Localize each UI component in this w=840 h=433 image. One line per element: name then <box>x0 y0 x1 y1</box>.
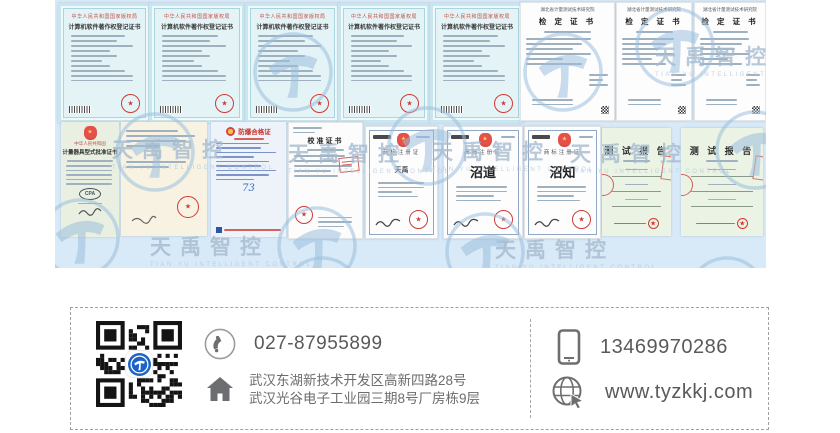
text-line <box>443 70 498 72</box>
mobile-phone-icon <box>556 329 582 365</box>
text-line <box>71 65 110 67</box>
mini-barcode <box>752 106 760 114</box>
text-line <box>258 55 305 57</box>
text-line <box>526 48 573 50</box>
text-line <box>162 35 218 37</box>
text-line <box>162 40 210 42</box>
text-line <box>258 45 321 47</box>
text-line <box>216 174 269 176</box>
certificate-thumbnail[interactable]: 校准证书 <box>288 122 363 239</box>
text-line <box>258 50 298 52</box>
text-line <box>351 75 412 77</box>
signature <box>78 207 102 217</box>
text-line <box>342 163 352 165</box>
text-line <box>258 65 298 67</box>
cert-title: 计算机软件著作权登记证书 <box>66 22 143 31</box>
text-line <box>71 50 110 52</box>
text-line <box>126 166 169 168</box>
text-line <box>216 165 261 167</box>
text-line <box>351 80 412 82</box>
text-line <box>78 203 101 205</box>
text-line <box>294 155 345 157</box>
certificate-thumbnail[interactable]: 中华人民共和国国家版权局 计算机软件著作权登记证书 <box>149 3 245 123</box>
text-line <box>342 160 355 163</box>
text-line <box>589 74 608 76</box>
text-line <box>526 63 582 65</box>
text-line <box>307 149 344 151</box>
certificate-thumbnail[interactable]: 商标注册证 天禹 <box>365 126 438 239</box>
text-line <box>351 60 381 62</box>
text-line <box>318 226 344 228</box>
cert-authority: 中华人民共和国国家版权局 <box>346 13 422 20</box>
text-line <box>456 186 507 188</box>
text-line <box>378 187 424 189</box>
certificate-thumbnail[interactable]: 湖北省计量测试技术研究院 检 定 证 书 <box>616 2 692 121</box>
text-line <box>443 75 505 77</box>
text-line <box>622 53 674 55</box>
text-line <box>443 80 505 82</box>
text-line <box>216 147 261 149</box>
text-line <box>622 38 674 40</box>
address-line-1: 武汉东湖新技术开发区高新四路28号 <box>249 373 467 388</box>
cert-title: 检 定 证 书 <box>617 16 691 27</box>
cert-title: 商标注册证 <box>451 148 515 156</box>
text-line <box>443 35 498 37</box>
text-line <box>351 70 404 72</box>
red-seal-icon <box>572 210 591 229</box>
national-emblem-icon <box>84 126 97 140</box>
red-seal-icon <box>409 210 428 229</box>
barcode <box>160 106 182 113</box>
certificate-thumbnail[interactable]: 中华人民共和国 计量器具型式批准证书 CPA <box>61 122 119 237</box>
national-emblem-icon <box>558 133 571 147</box>
text-line <box>746 74 761 76</box>
signature <box>453 217 479 229</box>
text-line <box>71 60 102 62</box>
text-line <box>126 145 160 147</box>
watermark-logo-icon <box>684 253 766 268</box>
certificate-thumbnail[interactable]: 湖北省计量测试技术研究院 检 定 证 书 <box>694 2 766 121</box>
address-line-2: 武汉光谷电子工业园三期8号厂房栋9层 <box>249 391 480 406</box>
cert-authority: 湖北省计量测试技术研究院 <box>617 7 691 13</box>
text-line <box>66 183 112 185</box>
text-line <box>126 135 195 137</box>
text-line <box>71 55 117 57</box>
certificate-thumbnail[interactable]: 测 试 报 告 <box>602 128 671 236</box>
text-line <box>66 170 112 172</box>
text-line <box>351 65 389 67</box>
cert-title: 测 试 报 告 <box>681 144 763 157</box>
certificate-thumbnail[interactable]: 中华人民共和国国家版权局 计算机软件著作权登记证书 <box>245 3 340 123</box>
text-line <box>706 104 737 106</box>
trademark-text: 沼知 <box>532 162 593 181</box>
text-line <box>162 80 226 82</box>
national-emblem-icon <box>397 133 410 147</box>
text-line <box>351 55 397 57</box>
handwritten-number: 73 <box>211 183 286 194</box>
barcode <box>69 106 91 113</box>
cert-title: 计算机软件著作权登记证书 <box>253 22 332 31</box>
text-line <box>443 45 505 47</box>
text-line <box>443 40 490 42</box>
text-line <box>294 160 338 162</box>
text-line <box>71 35 125 37</box>
watermark-text: 天禹智控TIAN YU INTELLIGENT CONTROL <box>495 234 657 268</box>
red-seal-icon <box>737 218 748 229</box>
text-line <box>351 40 397 42</box>
mobile-number: 13469970286 <box>600 336 728 359</box>
text-line <box>532 104 573 106</box>
text-line <box>526 38 591 40</box>
red-seal-icon <box>215 94 234 113</box>
text-line <box>66 179 112 181</box>
cert-authority: 中华人民共和国国家版权局 <box>253 13 332 20</box>
red-stamp <box>338 156 359 173</box>
cert-title: 校准证书 <box>289 136 362 146</box>
text-line <box>579 136 593 138</box>
text-line <box>216 152 276 154</box>
mini-barcode <box>601 106 609 114</box>
text-line <box>671 84 686 86</box>
text-line <box>526 43 582 45</box>
text-line <box>706 160 739 162</box>
text-line <box>162 55 210 57</box>
text-line <box>456 191 507 193</box>
home-icon <box>205 374 235 404</box>
watermark-logo-icon <box>279 253 365 268</box>
cert-title: 测 试 报 告 <box>602 144 671 157</box>
cert-authority: 中华人民共和国国家版权局 <box>157 13 237 20</box>
text-line <box>258 75 321 77</box>
text-line <box>71 45 133 47</box>
text-line <box>628 104 661 106</box>
red-stamp <box>660 155 671 180</box>
text-line <box>622 63 666 65</box>
text-line <box>258 40 305 42</box>
cert-title: 计算机软件著作权登记证书 <box>346 22 422 31</box>
cert-title: 检 定 证 书 <box>521 16 614 27</box>
text-line <box>746 84 761 86</box>
red-seal-icon <box>400 94 419 113</box>
contact-divider <box>530 319 531 418</box>
text-line <box>318 221 352 223</box>
text-line <box>746 79 757 81</box>
text-line <box>537 191 586 193</box>
text-line <box>451 135 469 139</box>
text-line <box>537 195 574 197</box>
text-line <box>706 99 737 101</box>
certificate-thumbnail[interactable]: 湖北省计量测试技术研究院 检 定 证 书 <box>520 2 615 121</box>
signature <box>375 217 401 229</box>
text-line <box>537 186 586 188</box>
text-line <box>162 65 202 67</box>
text-line <box>66 165 112 167</box>
cert-authority: 湖北省计量测试技术研究院 <box>521 7 614 13</box>
red-seal-icon <box>494 210 513 229</box>
text-line <box>162 70 218 72</box>
text-line <box>216 156 254 158</box>
text-line <box>700 48 735 50</box>
cert-title: 计算机软件著作权登记证书 <box>438 22 516 31</box>
text-line <box>373 135 391 139</box>
trademark-text: 天禹 <box>373 165 430 175</box>
text-line <box>234 138 264 140</box>
page: { "panel": { "bg": "#d8e9f7" }, "waterma… <box>0 0 840 433</box>
cert-title: 计算机软件著作权登记证书 <box>157 22 237 31</box>
mini-barcode <box>678 106 686 114</box>
cert-authority: 湖北省计量测试技术研究院 <box>695 7 765 13</box>
text-line <box>67 160 113 162</box>
red-seal-icon <box>494 94 513 113</box>
text-line <box>622 58 652 60</box>
text-line <box>216 161 269 163</box>
cert-authority: 中华人民共和国国家版权局 <box>66 13 143 20</box>
text-line <box>416 136 430 138</box>
text-line <box>622 43 666 45</box>
phone-number: 027-87955899 <box>254 333 383 355</box>
red-seal-icon <box>121 94 140 113</box>
text-line <box>589 79 604 81</box>
signature <box>534 217 560 229</box>
text-line <box>71 75 133 77</box>
cert-authority: 中华人民共和国国家版权局 <box>438 13 516 20</box>
cert-title: 检 定 证 书 <box>695 16 765 27</box>
text-line <box>622 48 659 50</box>
text-line <box>623 160 651 162</box>
certificate-thumbnail[interactable]: 测 试 报 告 <box>681 128 763 236</box>
text-line <box>66 174 112 176</box>
cert-country: 中华人民共和国 <box>61 141 119 147</box>
text-line <box>443 50 482 52</box>
cert-title: 商标注册证 <box>373 148 430 156</box>
certificate-thumbnail[interactable]: 中华人民共和国国家版权局 计算机软件著作权登记证书 <box>58 3 151 123</box>
text-line <box>544 31 591 33</box>
text-line <box>443 60 474 62</box>
text-line <box>351 35 404 37</box>
text-line <box>293 127 322 129</box>
text-line <box>443 65 482 67</box>
text-line <box>532 135 550 139</box>
red-seal-icon <box>681 174 693 196</box>
qr-center-logo-icon <box>126 351 152 377</box>
text-line <box>456 200 501 202</box>
red-seal-icon <box>648 218 659 229</box>
text-line <box>713 31 748 33</box>
text-line <box>378 191 412 193</box>
text-line <box>162 75 226 77</box>
text-line <box>258 35 313 37</box>
text-line <box>537 200 580 202</box>
text-line <box>258 70 313 72</box>
certificate-thumbnail[interactable]: 商标注册证 沼道 <box>443 126 523 239</box>
text-line <box>378 182 424 184</box>
text-line <box>700 43 742 45</box>
text-line <box>671 79 683 81</box>
phone-icon <box>204 328 236 360</box>
red-seal-icon <box>295 206 313 224</box>
red-seal-icon <box>310 94 329 113</box>
globe-cursor-icon <box>550 374 587 411</box>
text-line <box>443 55 490 57</box>
text-line <box>71 40 117 42</box>
text-line <box>258 60 290 62</box>
certificate-thumbnail[interactable]: 防爆合格证 73 <box>211 122 286 237</box>
text-line <box>71 70 125 72</box>
certificate-thumbnail[interactable] <box>121 122 207 236</box>
text-line <box>501 136 515 138</box>
certificate-thumbnail[interactable]: 中华人民共和国国家版权局 计算机软件著作权登记证书 <box>430 3 524 123</box>
red-stamp <box>752 155 763 180</box>
text-line <box>162 45 226 47</box>
text-line <box>526 53 591 55</box>
text-line <box>258 80 321 82</box>
explosion-proof-logo-icon <box>226 127 235 136</box>
text-line <box>162 60 194 62</box>
cert-title: 防爆合格证 <box>238 126 271 136</box>
text-line <box>589 84 608 86</box>
text-line <box>378 196 418 198</box>
text-line <box>456 195 494 197</box>
text-line <box>700 58 728 60</box>
text-line <box>700 63 742 65</box>
cert-title: 商标注册证 <box>532 148 593 156</box>
text-line <box>216 179 254 181</box>
text-line <box>126 161 186 163</box>
text-line <box>318 217 352 219</box>
text-line <box>294 175 338 177</box>
text-line <box>351 50 389 52</box>
text-line <box>126 130 178 132</box>
barcode <box>349 106 371 113</box>
text-line <box>71 80 133 82</box>
national-emblem-icon <box>479 133 492 147</box>
text-line <box>628 99 661 101</box>
company-address: 武汉东湖新技术开发区高新四路28号 武汉光谷电子工业园三期8号厂房栋9层 <box>249 372 480 407</box>
certificate-thumbnail[interactable]: 商标注册证 沼知 <box>524 126 601 239</box>
cpa-mark: CPA <box>79 188 101 200</box>
trademark-text: 沼道 <box>451 162 515 181</box>
cert-title: 计量器具型式批准证书 <box>61 148 119 156</box>
barcode <box>441 106 463 113</box>
cnex-logo-icon <box>216 227 222 233</box>
text-line <box>126 140 186 142</box>
text-line <box>671 74 686 76</box>
signature <box>131 215 157 225</box>
text-line <box>700 38 749 40</box>
text-line <box>293 132 315 134</box>
text-line <box>351 45 412 47</box>
text-line <box>216 170 276 172</box>
text-line <box>532 99 573 101</box>
text-line <box>636 31 673 33</box>
text-line <box>526 58 563 60</box>
text-line <box>216 143 269 145</box>
text-line <box>700 53 749 55</box>
text-line <box>294 170 331 172</box>
contact-section: 027-87955899 武汉东湖新技术开发区高新四路28号 武汉光谷电子工业园… <box>70 307 769 430</box>
barcode <box>256 106 278 113</box>
website-url[interactable]: www.tyzkkj.com <box>605 381 753 404</box>
certificates-panel: 中华人民共和国国家版权局 计算机软件著作权登记证书 中华人民共和国国家版权局 计… <box>55 0 766 268</box>
red-seal-icon <box>602 174 614 196</box>
certificate-thumbnail[interactable]: 中华人民共和国国家版权局 计算机软件著作权登记证书 <box>338 3 430 123</box>
qr-code <box>96 321 182 407</box>
red-seal-icon <box>177 196 199 218</box>
text-line <box>162 50 202 52</box>
